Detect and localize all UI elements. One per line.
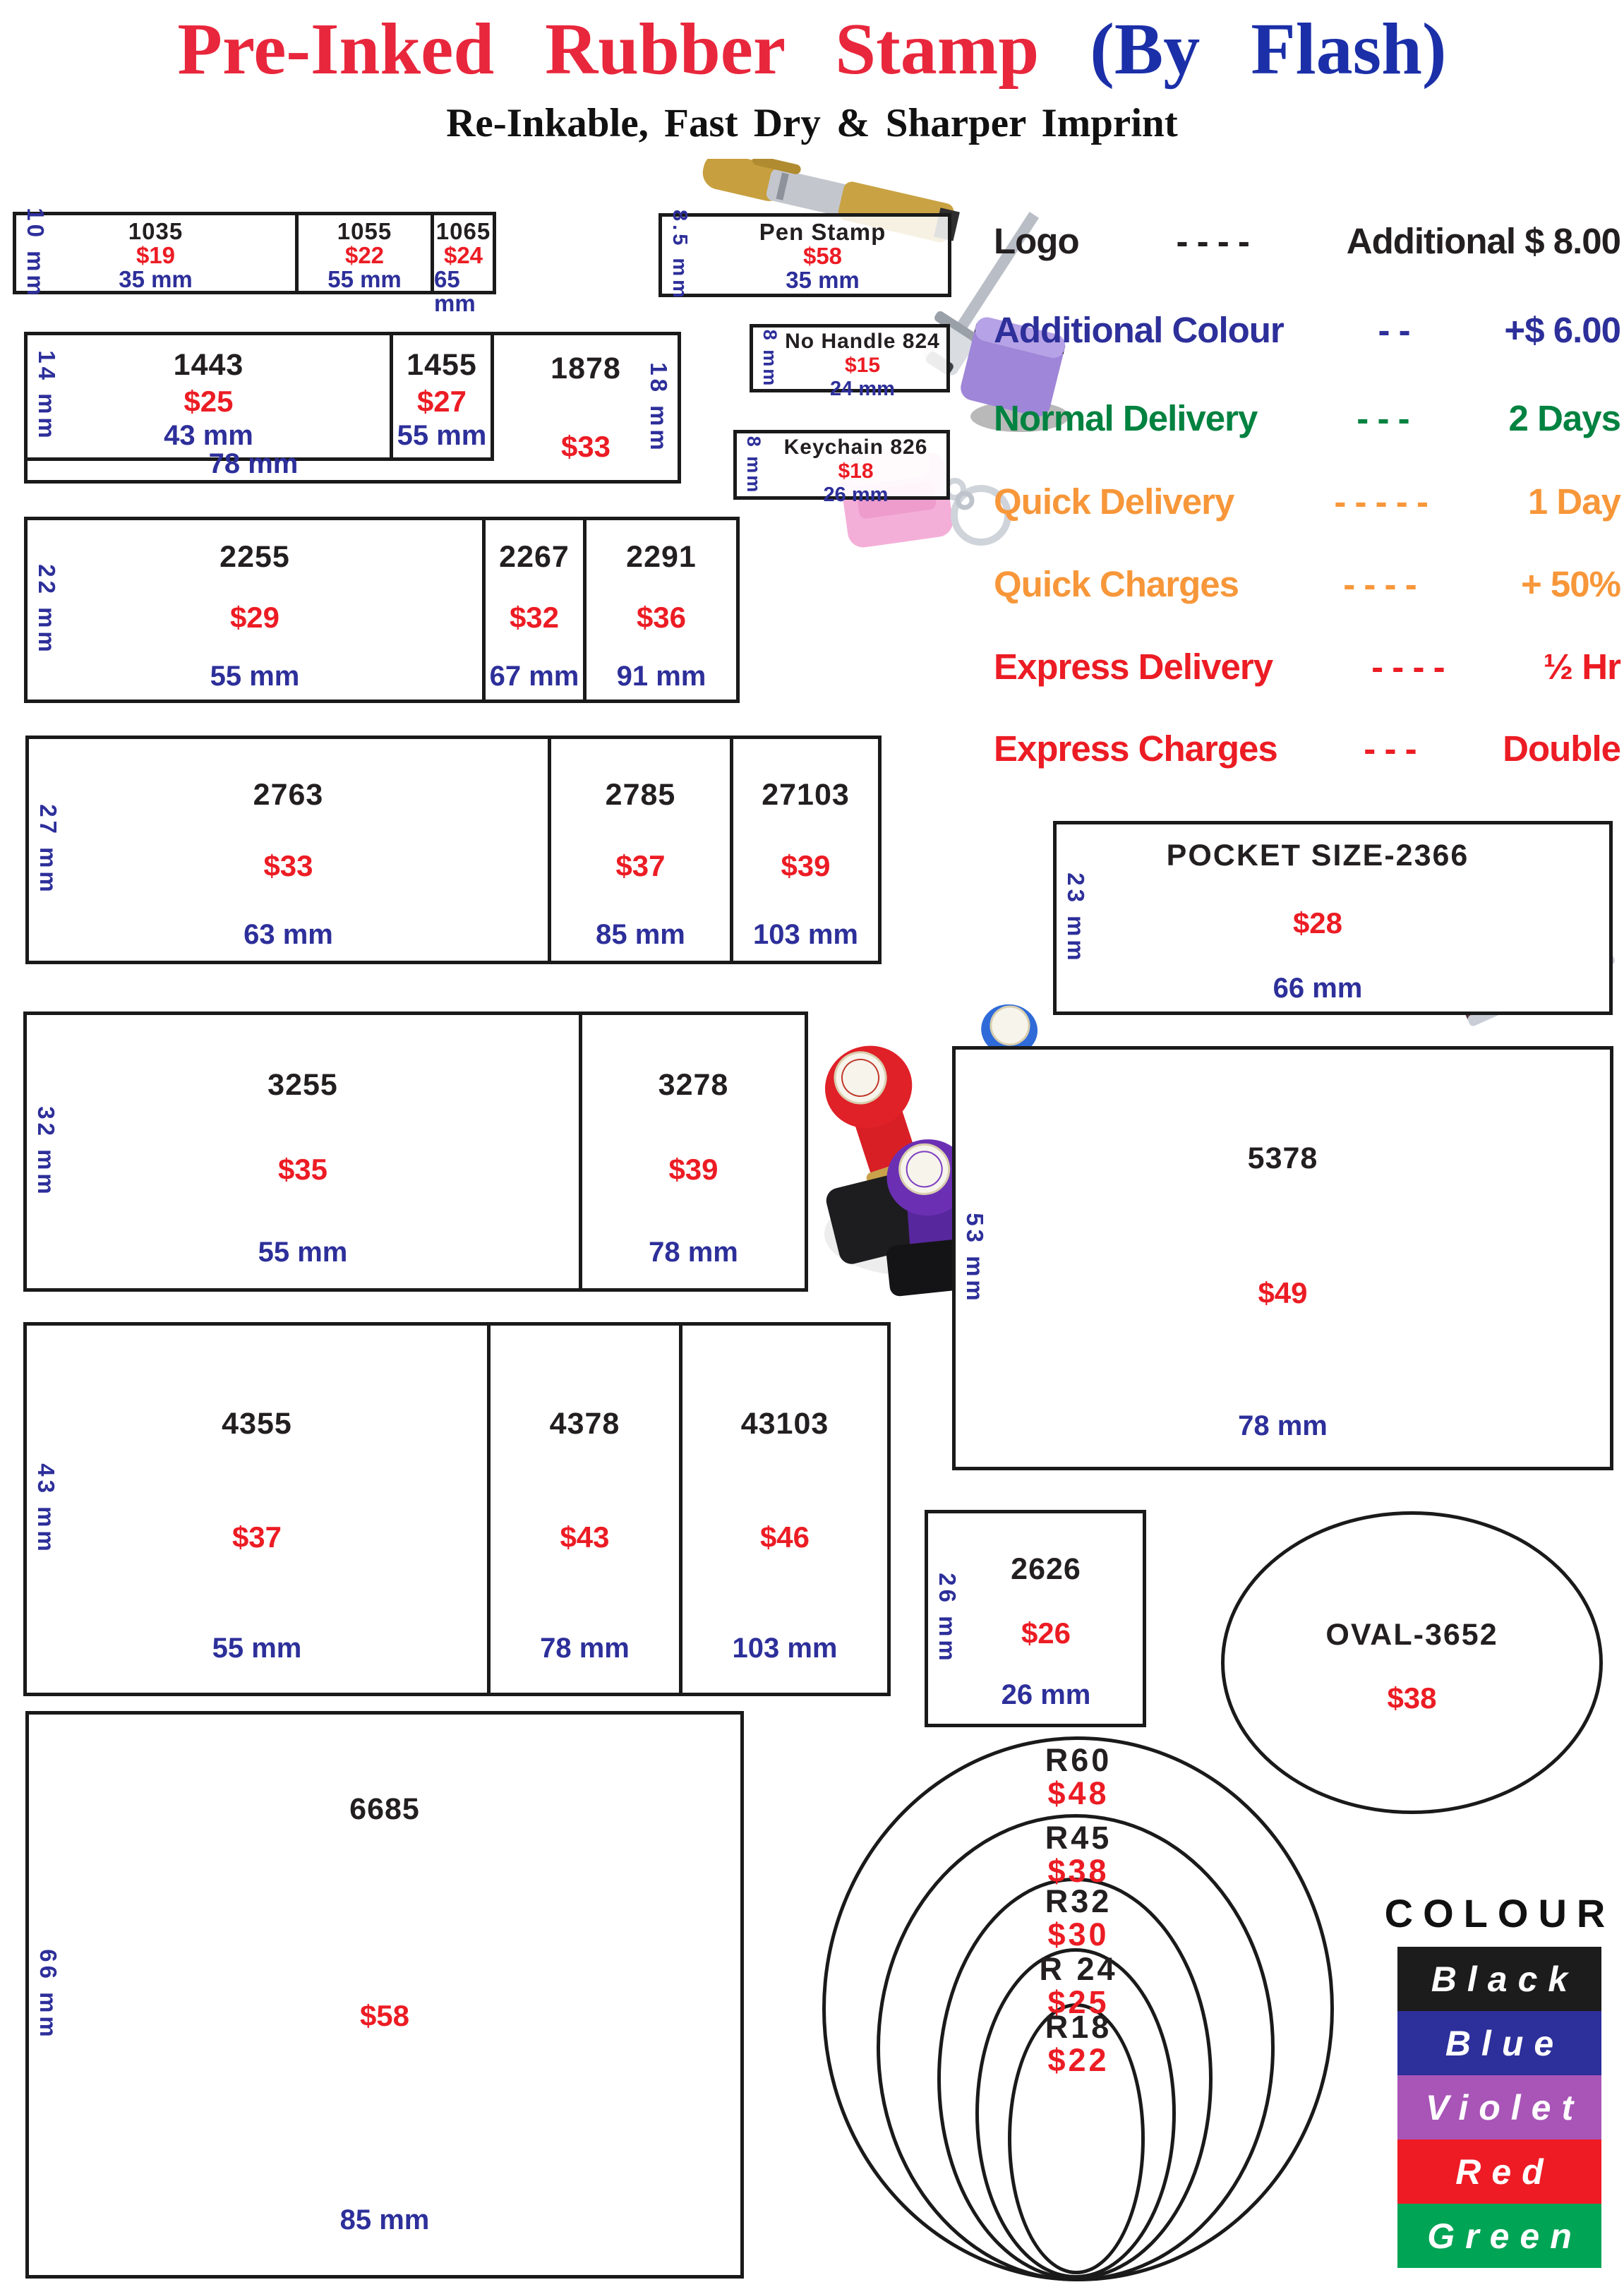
width-label: 55 mm: [397, 420, 487, 452]
width-label: 91 mm: [617, 661, 706, 692]
stamp-cell-1065: 1065 $24 65 mm: [434, 215, 493, 291]
stamp-cell-1443: 1443 $25 43 mm: [28, 335, 393, 461]
model-number: Keychain 826: [784, 436, 928, 460]
stamp-cell-2267: 2267 $32 67 mm: [486, 520, 587, 700]
info-label: Logo: [994, 220, 1079, 262]
size-box-5378: 53 mm 5378 $49 78 mm: [952, 1046, 1613, 1470]
model-number: R 24: [833, 1952, 1324, 1986]
width-label: 103 mm: [753, 919, 858, 951]
stamp-cell-43103: 43103 $46 103 mm: [682, 1326, 887, 1693]
width-label: 55 mm: [210, 661, 300, 692]
model-number: 1065: [436, 220, 491, 244]
width-label: 85 mm: [340, 2204, 430, 2236]
info-value: Additional $ 8.00: [1347, 220, 1620, 262]
model-number: 1055: [337, 220, 392, 244]
size-box-6685: 66 mm 6685 $58 85 mm: [25, 1711, 744, 2279]
width-label: 78 mm: [540, 1633, 630, 1664]
info-line-normal-delivery: Normal Delivery - - - 2 Days: [994, 397, 1620, 439]
colour-legend-title: COLOUR: [1376, 1890, 1623, 1936]
model-number: 43103: [741, 1407, 829, 1441]
price: $32: [510, 601, 559, 635]
info-label: Additional Colour: [994, 309, 1284, 351]
price: $39: [668, 1153, 718, 1187]
colour-name: Blue: [1435, 2023, 1564, 2064]
height-label: 8.5 mm: [668, 210, 691, 301]
model-number: 2267: [499, 540, 570, 575]
height-label: 8 mm: [759, 329, 781, 388]
width-label: 103 mm: [733, 1633, 838, 1664]
price: $48: [833, 1777, 1324, 1810]
price: $38: [833, 1854, 1324, 1887]
price: $36: [637, 601, 686, 635]
stamp-cell-2785: 2785 $37 85 mm: [551, 739, 733, 961]
price: $37: [232, 1520, 282, 1554]
colour-band-violet: Violet: [1397, 2075, 1601, 2139]
price: $19: [136, 244, 175, 268]
model-number: 6685: [349, 1792, 420, 1827]
flyer-page: { "header": { "title_red": "Pre-Inked Ru…: [0, 0, 1624, 2287]
model-number: 2255: [219, 540, 290, 575]
price: $43: [560, 1520, 609, 1554]
oval-3652-price: $38: [1221, 1681, 1603, 1715]
colour-band-blue: Blue: [1397, 2011, 1601, 2075]
price: $30: [833, 1918, 1324, 1951]
width-label: 35 mm: [119, 268, 193, 292]
price: $49: [1258, 1276, 1307, 1310]
width-label: 67 mm: [490, 661, 579, 692]
size-box-32mm: 32 mm 3255 $35 55 mm 3278 $39 78 mm: [23, 1012, 808, 1292]
stamp-cell-1455: 1455 $27 55 mm: [393, 335, 494, 461]
price: $29: [230, 601, 279, 635]
info-value: Double: [1503, 728, 1620, 769]
model-number: 2626: [1011, 1552, 1081, 1587]
model-number: 5378: [1248, 1141, 1318, 1176]
page-subtitle: Re-Inkable, Fast Dry & Sharper Imprint: [0, 100, 1624, 146]
price: $27: [417, 385, 467, 419]
colour-band-red: Red: [1397, 2139, 1601, 2204]
info-value: +$ 6.00: [1504, 309, 1620, 351]
price: $38: [1387, 1681, 1436, 1715]
price: $24: [444, 244, 483, 268]
height-label: 8 mm: [742, 436, 764, 494]
circle-label-r32: R32 $30: [833, 1885, 1324, 1951]
price: $22: [345, 244, 384, 268]
model-number: 2763: [253, 778, 324, 812]
stamp-cell-6685: 6685 $58 85 mm: [29, 1715, 740, 2275]
size-box-22mm: 22 mm 2255 $29 55 mm 2267 $32 67 mm 2291…: [24, 517, 740, 703]
no-handle-box: 8 mm No Handle 824 $15 24 mm: [750, 324, 950, 392]
info-line-express-delivery: Express Delivery - - - - ½ Hr: [994, 645, 1620, 688]
oval-3652-name: OVAL-3652: [1221, 1618, 1603, 1652]
info-line-quick-delivery: Quick Delivery - - - - - 1 Day: [994, 480, 1620, 522]
model-number: Pen Stamp: [759, 220, 886, 244]
price: $25: [184, 385, 233, 419]
info-line-logo: Logo - - - - Additional $ 8.00: [994, 220, 1620, 262]
width-label: 43 mm: [164, 420, 253, 452]
model-number: 1443: [174, 348, 244, 383]
model-number: 2291: [626, 540, 697, 575]
info-dashes: - -: [1378, 309, 1410, 351]
stamp-cell-5378: 5378 $49 78 mm: [956, 1050, 1610, 1467]
pen-stamp-box: 8.5 mm Pen Stamp $58 35 mm: [658, 213, 951, 297]
stamp-cell-pen: Pen Stamp $58 35 mm: [697, 217, 948, 294]
price: $58: [803, 244, 842, 268]
price: $22: [833, 2043, 1324, 2077]
width-label: 78 mm: [649, 1237, 738, 1268]
info-dashes: - - - - -: [1334, 481, 1428, 522]
width-label: 63 mm: [243, 919, 333, 951]
pocket-size-box: 23 mm POCKET SIZE-2366 $28 66 mm: [1053, 821, 1613, 1015]
colour-band-black: Black: [1397, 1947, 1601, 2011]
info-value: 2 Days: [1509, 397, 1620, 439]
info-line-quick-charges: Quick Charges - - - - + 50%: [994, 563, 1620, 605]
model-number: 1455: [407, 348, 477, 383]
size-box-43mm: 43 mm 4355 $37 55 mm 4378 $43 78 mm 4310…: [23, 1322, 891, 1696]
width-label: 24 mm: [830, 378, 895, 401]
keychain-box: 8 mm Keychain 826 $18 26 mm: [733, 430, 950, 500]
stamp-cell-1055: 1055 $22 55 mm: [299, 215, 434, 291]
price: $28: [1293, 906, 1342, 940]
model-number: OVAL-3652: [1325, 1618, 1498, 1652]
info-label: Quick Delivery: [994, 481, 1234, 522]
page-title-main: Pre-Inked Rubber Stamp: [177, 8, 1090, 90]
price: $37: [615, 849, 665, 883]
width-label: 55 mm: [327, 268, 402, 292]
price: $58: [360, 1999, 409, 2033]
info-dashes: - - -: [1364, 728, 1416, 769]
model-number: POCKET SIZE-2366: [1167, 839, 1469, 873]
model-number: 4355: [222, 1407, 292, 1441]
info-dashes: - - - -: [1343, 563, 1416, 605]
colour-name: Red: [1445, 2151, 1553, 2192]
stamp-cell-2255: 2255 $29 55 mm: [28, 520, 486, 700]
info-label: Normal Delivery: [994, 397, 1257, 439]
price: $33: [561, 430, 610, 464]
size-box-27mm: 27 mm 2763 $33 63 mm 2785 $37 85 mm 2710…: [25, 736, 882, 964]
model-number: 2785: [606, 778, 676, 812]
model-number: R32: [833, 1885, 1324, 1918]
stamp-cell-2291: 2291 $36 91 mm: [587, 520, 736, 700]
colour-name: Black: [1421, 1959, 1578, 2000]
size-box-2626: 26 mm 2626 $26 26 mm: [925, 1510, 1146, 1727]
price: $26: [1021, 1616, 1071, 1650]
width-label: 85 mm: [596, 919, 685, 951]
price: $35: [278, 1153, 327, 1187]
model-number: 1035: [128, 220, 183, 244]
width-label: 55 mm: [258, 1237, 348, 1268]
circle-label-r60: R60 $48: [833, 1743, 1324, 1810]
colour-band-green: Green: [1397, 2204, 1601, 2268]
width-label: 78 mm: [28, 448, 479, 480]
info-dashes: - - -: [1357, 397, 1409, 439]
price: $18: [838, 460, 873, 484]
model-number: 3255: [267, 1068, 338, 1103]
info-line-express-charges: Express Charges - - - Double: [994, 727, 1620, 769]
model-number: 1878: [551, 352, 621, 386]
size-box-14-18mm: 14 mm 1443 $25 43 mm 1455 $27 55 mm 1878…: [24, 332, 681, 484]
info-dashes: - - - -: [1176, 220, 1249, 262]
price: $33: [263, 849, 313, 883]
stamp-cell-826: Keychain 826 $18 26 mm: [765, 433, 946, 496]
stamp-cell-4355: 4355 $37 55 mm: [27, 1326, 491, 1693]
width-label: 35 mm: [786, 268, 860, 292]
stamp-cell-2626: 2626 $26 26 mm: [949, 1513, 1143, 1724]
colour-name: Green: [1417, 2216, 1582, 2257]
info-label: Express Charges: [994, 728, 1277, 769]
stamp-cell-pocket: POCKET SIZE-2366 $28 66 mm: [1085, 824, 1551, 1012]
price: $46: [760, 1520, 810, 1554]
width-label: 26 mm: [1002, 1679, 1091, 1711]
price: $39: [781, 849, 830, 883]
info-value: 1 Day: [1528, 481, 1620, 522]
width-label: 78 mm: [1238, 1410, 1328, 1442]
width-label: 26 mm: [824, 484, 889, 507]
width-label: 65 mm: [434, 268, 493, 316]
stamp-cell-3278: 3278 $39 78 mm: [582, 1015, 805, 1288]
page-title: Pre-Inked Rubber Stamp (By Flash): [0, 7, 1624, 91]
stamp-cell-27103: 27103 $39 103 mm: [733, 739, 878, 961]
width-label: 66 mm: [1273, 973, 1363, 1004]
model-number: 27103: [762, 778, 850, 812]
page-title-brand: (By Flash): [1090, 8, 1446, 90]
info-line-additional-colour: Additional Colour - - +$ 6.00: [994, 308, 1620, 351]
model-number: 4378: [550, 1407, 620, 1441]
model-number: R18: [833, 2010, 1324, 2043]
stamp-cell-4378: 4378 $43 78 mm: [491, 1326, 682, 1693]
stamp-cell-3255: 3255 $35 55 mm: [27, 1015, 582, 1288]
info-dashes: - - - -: [1371, 646, 1444, 688]
width-label: 55 mm: [212, 1633, 302, 1664]
stamp-cell-1035: 1035 $19 35 mm: [16, 215, 299, 291]
size-box-10mm: 10 mm 1035 $19 35 mm 1055 $22 55 mm 1065…: [13, 212, 496, 294]
info-label: Quick Charges: [994, 563, 1239, 605]
circle-label-r45: R45 $38: [833, 1821, 1324, 1887]
info-value: + 50%: [1521, 563, 1620, 605]
stamp-cell-2763: 2763 $33 63 mm: [29, 739, 551, 961]
model-number: R45: [833, 1821, 1324, 1854]
stamp-cell-824: No Handle 824 $15 24 mm: [778, 328, 946, 389]
info-value: ½ Hr: [1544, 646, 1620, 688]
model-number: 3278: [658, 1068, 729, 1103]
colour-name: Violet: [1415, 2087, 1584, 2128]
model-number: R60: [833, 1743, 1324, 1777]
circle-label-r18: R18 $22: [833, 2010, 1324, 2077]
price: $15: [845, 354, 880, 378]
info-label: Express Delivery: [994, 646, 1273, 688]
height-label: 18 mm: [645, 362, 672, 454]
model-number: No Handle 824: [785, 330, 940, 354]
